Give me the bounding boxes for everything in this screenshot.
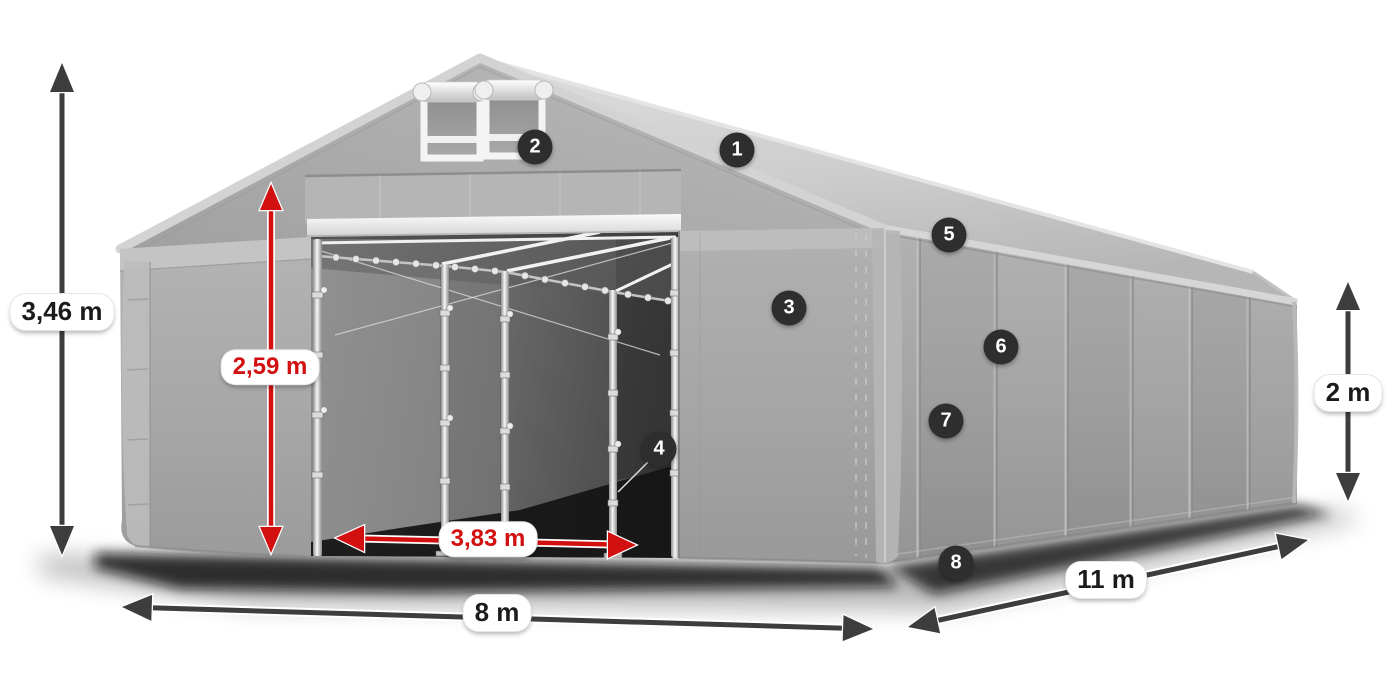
corner-band — [872, 229, 902, 563]
front-right-wall — [679, 228, 884, 563]
tent-dimension-diagram: 3,46 m 2,59 m 3,83 m 8 m 11 m 2 m 1 2 3 … — [0, 0, 1400, 700]
feature-badge-5: 5 — [932, 218, 967, 253]
feature-badge-8: 8 — [939, 546, 974, 581]
feature-badge-3: 3 — [772, 291, 807, 326]
feature-badge-1: 1 — [720, 133, 755, 168]
dimension-label-door-height: 2,59 m — [222, 350, 319, 384]
dimension-label-door-width: 3,83 m — [440, 522, 537, 556]
dimension-label-side-wall-height: 2 m — [1315, 375, 1382, 411]
front-left-wall — [120, 237, 311, 556]
tent-illustration — [0, 0, 1400, 700]
door-interior — [311, 231, 681, 558]
dimension-label-front-width: 8 m — [464, 595, 531, 631]
dimension-label-side-length: 11 m — [1066, 562, 1146, 598]
feature-badge-7: 7 — [929, 404, 964, 439]
feature-badge-4: 4 — [642, 432, 677, 467]
feature-badge-2: 2 — [518, 130, 553, 165]
feature-badge-6: 6 — [984, 330, 1019, 365]
dimension-label-total-height: 3,46 m — [11, 294, 114, 330]
